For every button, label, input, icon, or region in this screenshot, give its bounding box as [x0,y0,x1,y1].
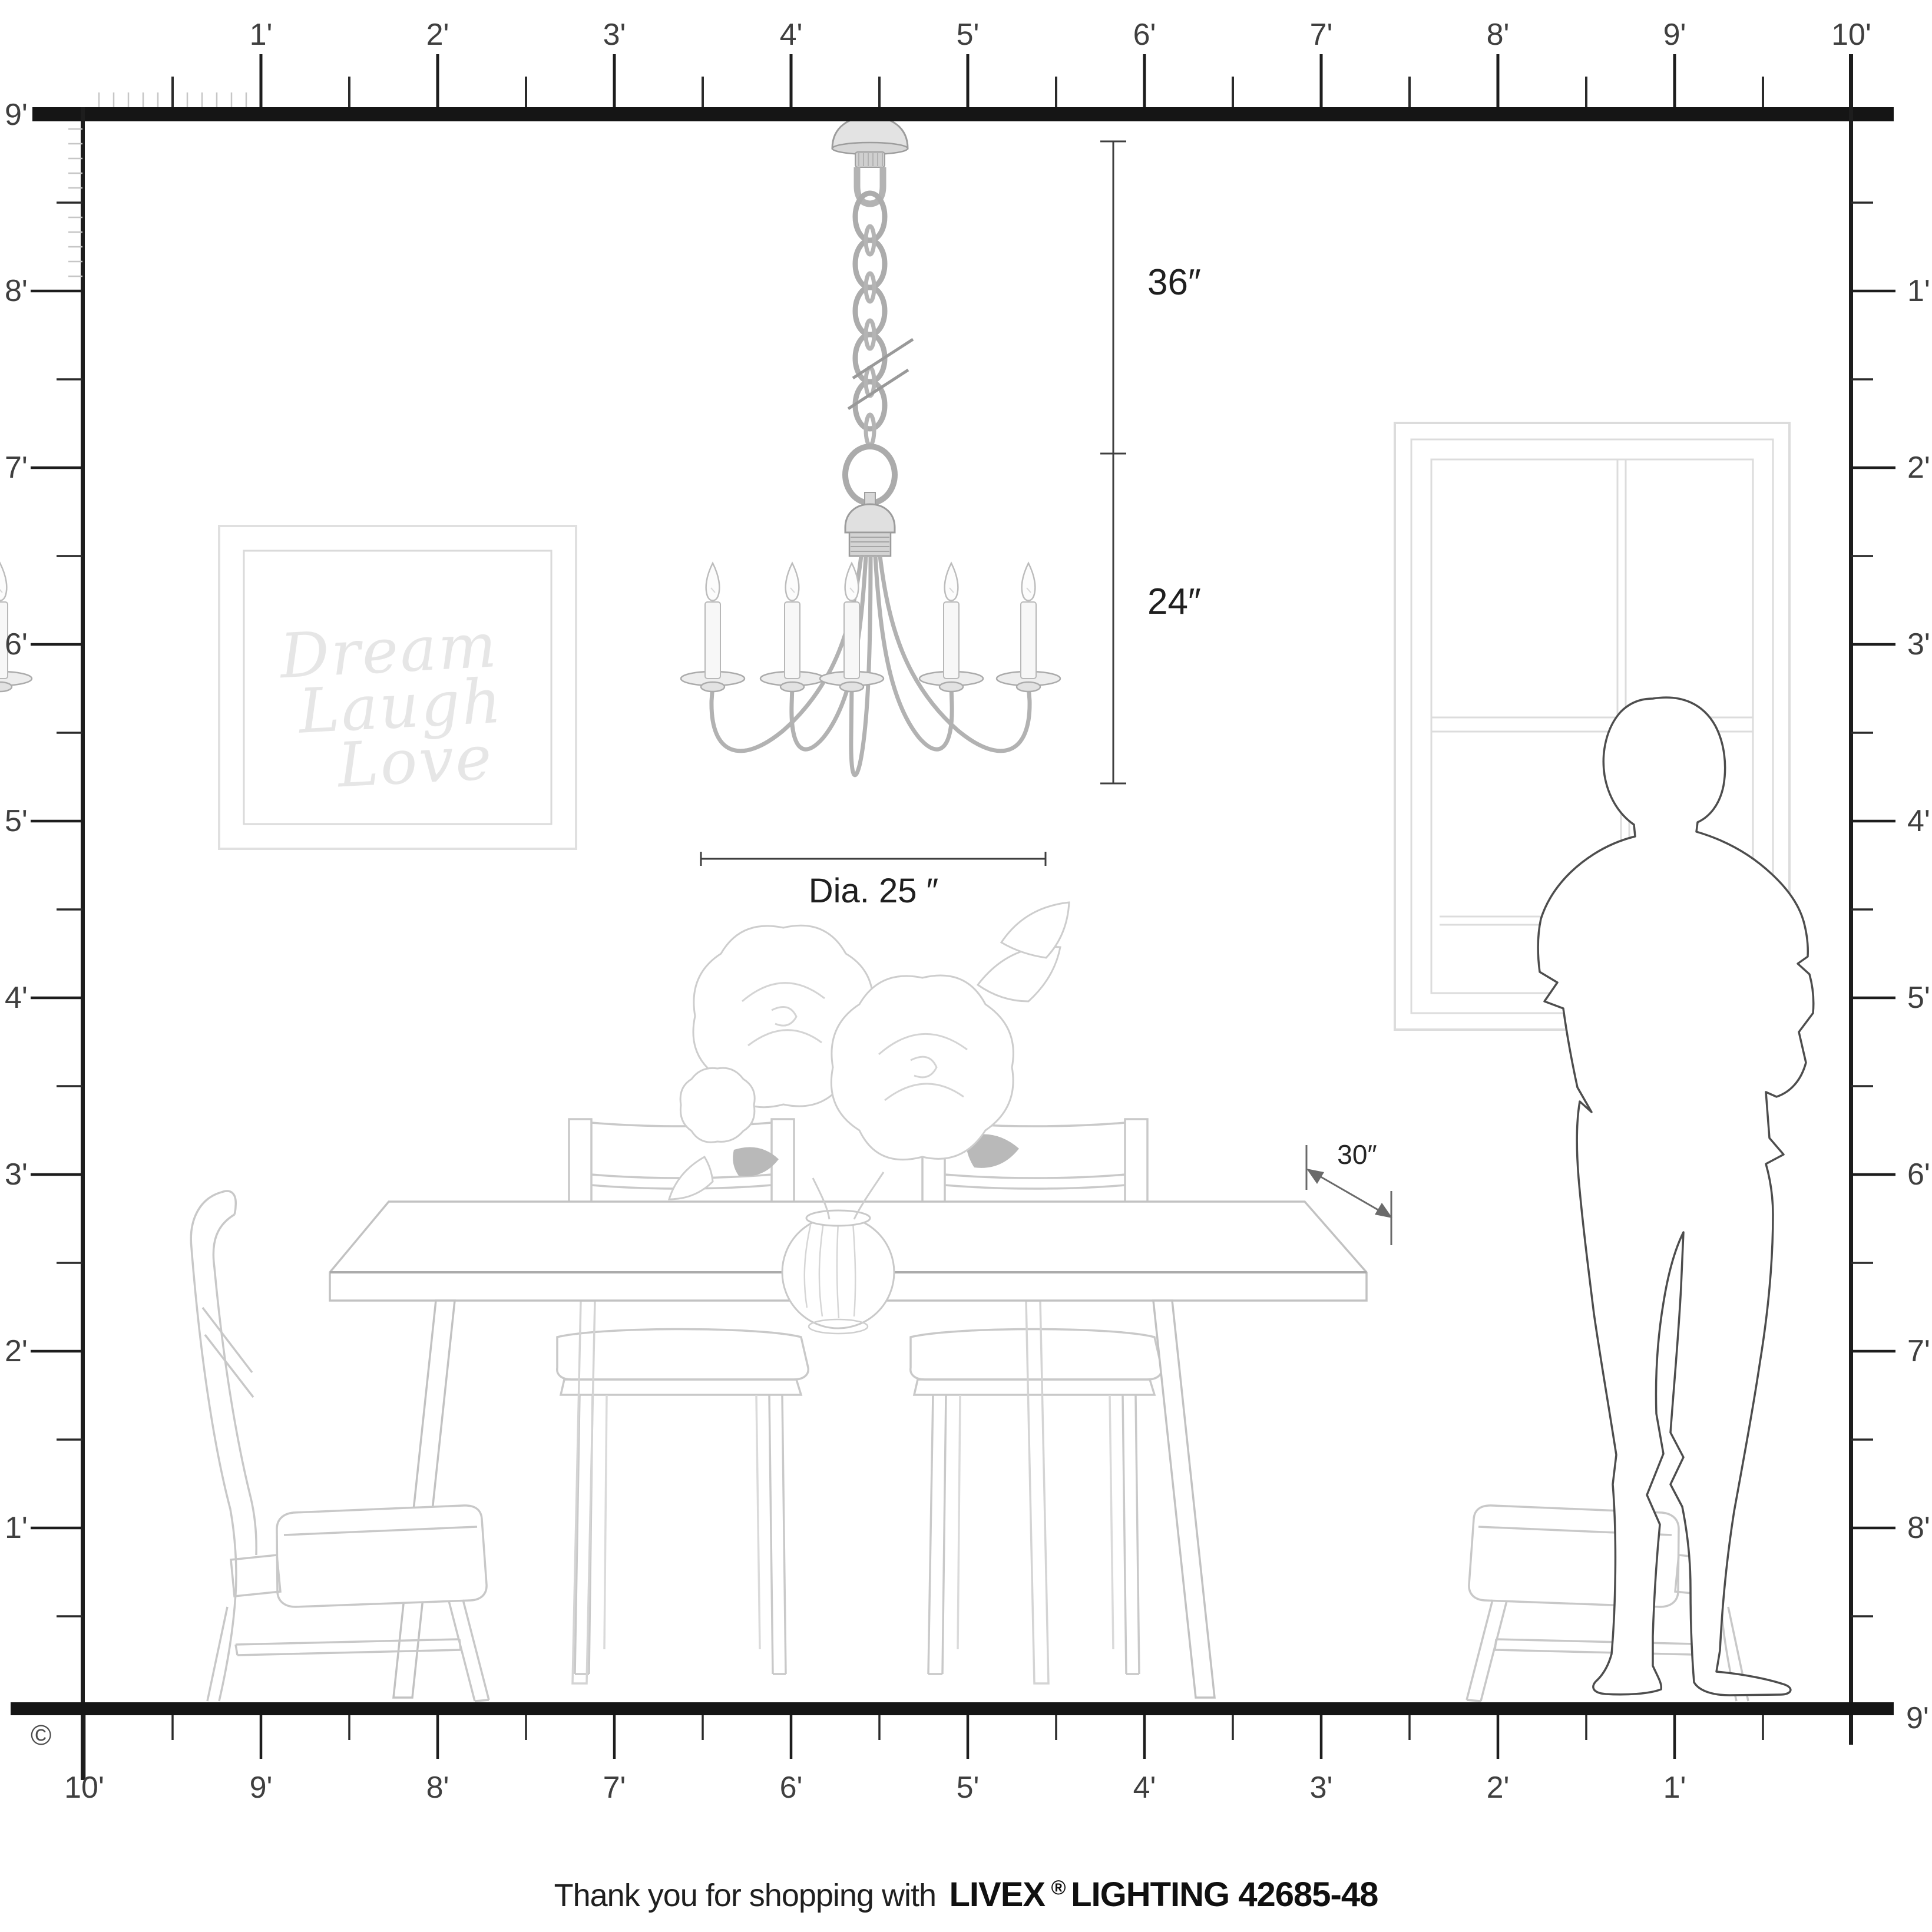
ruler-top: 1'2'3'4'5'6'7'8'9'10' [32,18,1894,121]
ruler-top-ticks [99,54,1851,107]
ruler-unit-label: 8' [5,274,28,308]
right-wall-line [1849,54,1853,1745]
ruler-unit-label: 3' [1907,627,1930,661]
ruler-unit-label: 5' [957,18,980,52]
ruler-unit-label: 1' [5,1511,28,1545]
flower-bouquet [669,902,1069,1219]
ruler-unit-label: 6' [1133,18,1156,52]
copyright-symbol: © [31,1720,51,1751]
ruler-unit-label: 1' [250,18,273,52]
peony-bud [680,1068,755,1142]
ruler-unit-label: 3' [5,1157,28,1192]
ruler-left-labels: 9'8'7'6'5'4'3'2'1' [5,98,28,1545]
ruler-unit-label: 10' [1831,18,1871,52]
fixture-height-label: 24″ [1147,581,1201,622]
dining-set [191,902,1765,1701]
registered-trademark-icon: ® [1051,1877,1066,1899]
ruler-unit-label: 5' [1907,981,1930,1015]
ruler-unit-label: 9' [250,1771,273,1805]
ruler-unit-label: 8' [1487,18,1510,52]
ruler-unit-label: 2' [1907,451,1930,485]
ruler-unit-label: 3' [603,18,626,52]
ruler-unit-label: 8' [1907,1511,1930,1545]
chain-length-label: 36″ [1147,262,1201,303]
ruler-right-labels: 1'2'3'4'5'6'7'8' [1907,274,1930,1545]
footer-message: Thank you for shopping with [554,1878,936,1913]
arrowhead [1306,1169,1324,1184]
chair-seat-cushion [277,1506,487,1607]
table-leg [1153,1301,1215,1698]
ruler-unit-label: 4' [1133,1771,1156,1805]
ruler-unit-label: 6' [5,627,28,661]
ruler-unit-label: 10' [64,1771,104,1805]
ruler-bottom-ticks [84,1715,1763,1780]
ruler-unit-label: 6' [780,1771,803,1805]
footer-brand: LIVEX [949,1875,1046,1914]
chandelier [0,117,1060,775]
bulb [0,563,6,601]
chair-seat-frame [561,1379,801,1395]
ruler-right-floor-label: 9' [1906,1701,1929,1735]
ruler-unit-label: 9' [5,98,28,132]
diameter-label: Dia. 25 ″ [809,872,938,910]
ruler-right: 1'2'3'4'5'6'7'8' 9' [1849,54,1930,1745]
chair-rear-leg [604,1395,760,1649]
ruler-unit-label: 7' [603,1771,626,1805]
ruler-left: 9'8'7'6'5'4'3'2'1' [5,98,85,1780]
ruler-unit-label: 4' [5,981,28,1015]
ruler-unit-label: 2' [1487,1771,1510,1805]
chair-bracket [231,1555,280,1596]
ruler-unit-label: 7' [5,451,28,485]
canopy-nut [855,152,885,167]
chair-stretcher [236,1639,461,1655]
ruler-bottom: 10'9'8'7'6'5'4'3'2'1' © [11,1702,1894,1805]
ruler-unit-label: 7' [1310,18,1333,52]
footer-brand-suffix: LIGHTING 42685-48 [1071,1875,1378,1914]
chandelier-arms [712,556,1030,775]
ruler-unit-label: 1' [1663,1771,1686,1805]
diameter-dimension-line [701,852,1046,866]
table-leg [393,1301,455,1698]
ruler-unit-label: 9' [1663,18,1686,52]
chair-rear-leg [207,1607,227,1701]
fixture-cap [845,504,895,532]
ruler-unit-label: 2' [5,1334,28,1368]
ruler-bottom-labels: 10'9'8'7'6'5'4'3'2'1' [64,1771,1686,1805]
chain [848,193,913,445]
ruler-right-ticks [1851,203,1895,1616]
scene: Dream Laugh Love [0,0,1932,1932]
chair-leg [769,1395,786,1674]
ruler-unit-label: 6' [1907,1157,1930,1192]
chain-link [855,240,885,287]
fixture-collar [849,532,891,556]
ruler-unit-label: 4' [1907,804,1930,838]
wall-art: Dream Laugh Love [219,526,576,849]
floor-line [11,1702,1894,1715]
dimension-diagram: Dream Laugh Love [0,0,1932,1932]
footer-caption: Thank you for shopping with LIVEX ® LIGH… [554,1875,1378,1914]
ruler-unit-label: 4' [780,18,803,52]
table-depth-label: 30″ [1337,1139,1377,1170]
ruler-unit-label: 8' [426,1771,449,1805]
arm [875,556,952,749]
ruler-top-labels: 1'2'3'4'5'6'7'8'9'10' [250,18,1871,52]
ceiling-line [32,107,1894,121]
vase-neck [806,1210,870,1226]
wall-art-line-3: Love [335,722,495,802]
chain-link [855,193,885,240]
depth-arrow [1315,1173,1384,1213]
height-dimension-line [1100,141,1126,783]
ruler-unit-label: 2' [426,18,449,52]
ruler-left-ticks [31,129,82,1616]
ruler-unit-label: 7' [1907,1334,1930,1368]
ruler-unit-label: 1' [1907,274,1930,308]
chair-post [569,1119,591,1203]
ruler-unit-label: 3' [1310,1771,1333,1805]
arrowhead [1375,1203,1392,1218]
chain-link [855,287,885,335]
ruler-unit-label: 5' [5,804,28,838]
ruler-unit-label: 5' [957,1771,980,1805]
